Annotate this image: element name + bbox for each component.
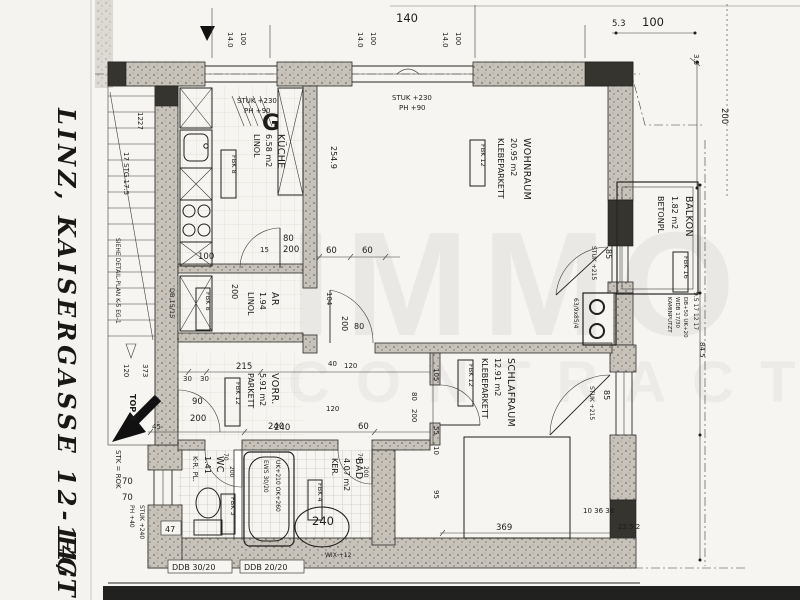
entry-top3-label: TOP 3: [128, 394, 137, 420]
bad-area: 4.07 m2: [342, 458, 351, 491]
ar-room-floor: LINOL: [246, 292, 255, 316]
bad-door-height: 200: [362, 466, 369, 478]
ddb-note-2: DDB 20/20: [244, 563, 287, 572]
ar-room-name: AR: [269, 292, 280, 306]
vorraum-floor: PARKETT: [246, 373, 255, 408]
bad-door-width: 70: [356, 453, 363, 461]
dim-845: 84.5: [698, 342, 706, 358]
wc-door-width: 70: [222, 453, 229, 461]
stair-dim-1227: 1227: [136, 112, 144, 130]
wc-window-spec2: PH +40: [128, 505, 135, 528]
entry-dim-30a: 30: [183, 375, 192, 383]
balcony-door-bedroom-spec: STUK +215: [588, 386, 595, 420]
kamin-small-note: 63/9x85/4: [572, 298, 579, 329]
top-dim-140b: 14.0: [356, 32, 364, 48]
tub-spec-2: UK+210 OK+260: [274, 460, 281, 512]
ar-fbk-label: FBK 8: [204, 292, 212, 311]
vorraum-name: VORR.: [269, 373, 280, 405]
vorr-dim-60a: 60: [326, 246, 337, 256]
bedroom-door-height: 200: [410, 409, 418, 422]
bad-fbk-label: FBK 4: [316, 483, 324, 502]
top-dim-100d: 100: [642, 15, 664, 29]
left-dim-70a: 70: [122, 477, 133, 487]
balcony-door-living-spec: STUK +215: [590, 246, 597, 280]
tub-spec-1: EWS 30/20: [262, 460, 269, 493]
balcony-area: 1.82 m2: [670, 196, 679, 229]
kitchen-dim-15: 15: [260, 246, 269, 254]
top-dim-53: 5.3: [612, 19, 626, 29]
watermark: IMMO CONTRACT: [288, 202, 800, 415]
left-dim-47: 47: [165, 525, 175, 534]
stair-detail-note: SIEHE DETAIL-PLAN K-5 EG-1: [114, 238, 121, 324]
kitchen-door-width: 80: [283, 234, 294, 244]
watermark-line1: IMMO: [290, 202, 749, 367]
bedroom-dim-369: 369: [496, 523, 512, 533]
kitchen-room-name: KÜCHE: [275, 134, 286, 169]
margin-annotations: LINZ, KAISERGASSE 12-14/TOP 3 EG: [52, 107, 81, 600]
balcony-floor: BETONPL: [656, 196, 665, 234]
left-dim-70b: 70: [122, 493, 133, 503]
living-room-name: WOHNRAUM: [521, 138, 532, 200]
bedroom-dim-95: 95: [432, 490, 440, 499]
vorr-dim-215: 215: [236, 362, 252, 372]
kitchen-room-area: 6.58 m2: [264, 134, 273, 167]
living-room-area: 20.95 m2: [509, 138, 518, 176]
balcony-door-bedroom-width: 85: [602, 390, 611, 400]
entry-door-height: 200: [190, 414, 206, 424]
top-dim-35: 3.5: [692, 54, 700, 65]
bedroom-fbk-label: FBK 12: [467, 364, 475, 387]
top-dim-100b: 100: [369, 32, 377, 45]
kamin-dims: 9.5 17 12 17: [692, 292, 699, 330]
living-window-spec2: PH +90: [399, 104, 425, 112]
ddb-note-1: DDB 30/20: [172, 563, 215, 572]
bad-dim-240: 240: [268, 422, 284, 432]
watermark-line2: CONTRACT: [288, 350, 800, 415]
balcony-fbk-label: FBK 16: [682, 256, 690, 279]
vorraum-fbk-label: FBK 12: [234, 382, 242, 405]
vorraum-area: 5.91 m2: [258, 373, 267, 406]
wc-window-spec1: STUK +240: [138, 505, 145, 539]
living-door-width: 80: [354, 322, 364, 331]
ar-dim-200: 200: [230, 284, 239, 299]
bedroom-floor: KLEBEPARKETT: [480, 358, 489, 419]
vorr-dim-40: 40: [328, 360, 337, 368]
stair-dim-373: 373: [141, 364, 149, 377]
scanned-floor-plan: LINZ, KAISERGASSE 12-14/TOP 3 EG IMMO CO…: [0, 0, 800, 600]
living-dim-2549: 254.9: [329, 146, 338, 169]
top-dim-100c: 100: [454, 32, 462, 45]
bedroom-area: 12.91 m2: [493, 358, 502, 396]
wix-note: WIX +12: [325, 552, 352, 559]
bedroom-dim-103638: 10 36 38: [583, 507, 614, 515]
bedroom-dim-225: 22.5 2: [618, 523, 640, 531]
kamin-note-3: DB+50 UK+20: [682, 297, 688, 338]
kitchen-window-spec2: PH +90: [244, 107, 270, 115]
kitchen-door-height: 200: [283, 245, 299, 255]
top-dim-140a: 14.0: [226, 32, 234, 48]
living-room-floor: KLEBEPARKETT: [496, 138, 505, 199]
bedroom-name: SCHLAFRAUM: [505, 358, 516, 427]
stk-rok-note: STK = ROK: [114, 450, 122, 489]
floor-plan-svg: LINZ, KAISERGASSE 12-14/TOP 3 EG IMMO CO…: [0, 0, 800, 600]
floor-level-handwriting: EG: [52, 534, 81, 582]
wc-door-height: 200: [228, 466, 235, 478]
address-handwriting: LINZ, KAISERGASSE 12-14/TOP 3: [52, 107, 81, 600]
stair-steps-label: 17 STG 17.5: [122, 152, 130, 195]
kamin-note-2: WDB 17/30: [674, 297, 680, 329]
stair-dim-120: 120: [122, 364, 130, 377]
wc-floor: K-R. PL.: [191, 456, 199, 482]
bad-dim-45: 45: [152, 423, 161, 431]
living-door-dim-104: 104: [325, 292, 333, 306]
balcony-name: BALKON: [683, 196, 694, 237]
entry-dim-30b: 30: [200, 375, 209, 383]
living-door-height: 200: [340, 316, 349, 331]
kitchen-window-spec1: STUK +230: [237, 97, 277, 105]
scan-bottom-band: [103, 586, 800, 600]
kamin-note-1: KAMINPUTZT: [666, 297, 672, 333]
right-dim-200: 200: [719, 108, 729, 124]
entry-door-width: 90: [192, 397, 203, 407]
bedroom-dim-10: 10: [432, 446, 440, 455]
kitchen-dim-100: 100: [198, 252, 214, 262]
living-window-spec1: STUK +230: [392, 94, 432, 102]
ar-room-area: 1.94: [258, 292, 267, 310]
basin-dim-240: 240: [312, 514, 334, 528]
wc-area: 1.41: [203, 456, 212, 474]
top-dim-140c: 14.0: [441, 32, 449, 48]
vorr-dim-120b: 120: [326, 405, 339, 413]
balcony-door-living-width: 85: [604, 249, 613, 259]
bad-floor: KER.: [330, 458, 339, 476]
bedroom-door-width: 80: [410, 392, 418, 401]
wall-note-db: DB 15/15: [168, 288, 176, 318]
top-dim-140: 140: [396, 11, 418, 25]
vorr-dim-60b: 60: [362, 246, 373, 256]
kitchen-fbk-label: FBK 8: [230, 155, 238, 174]
top-dim-100a: 100: [239, 32, 247, 45]
vorr-dim-120a: 120: [344, 362, 357, 370]
living-fbk-label: FBK 12: [479, 144, 487, 167]
kitchen-room-floor: LINOL: [252, 134, 261, 158]
bad-dim-60: 60: [358, 422, 369, 432]
wc-fbk-label: FBK 3: [229, 497, 237, 516]
